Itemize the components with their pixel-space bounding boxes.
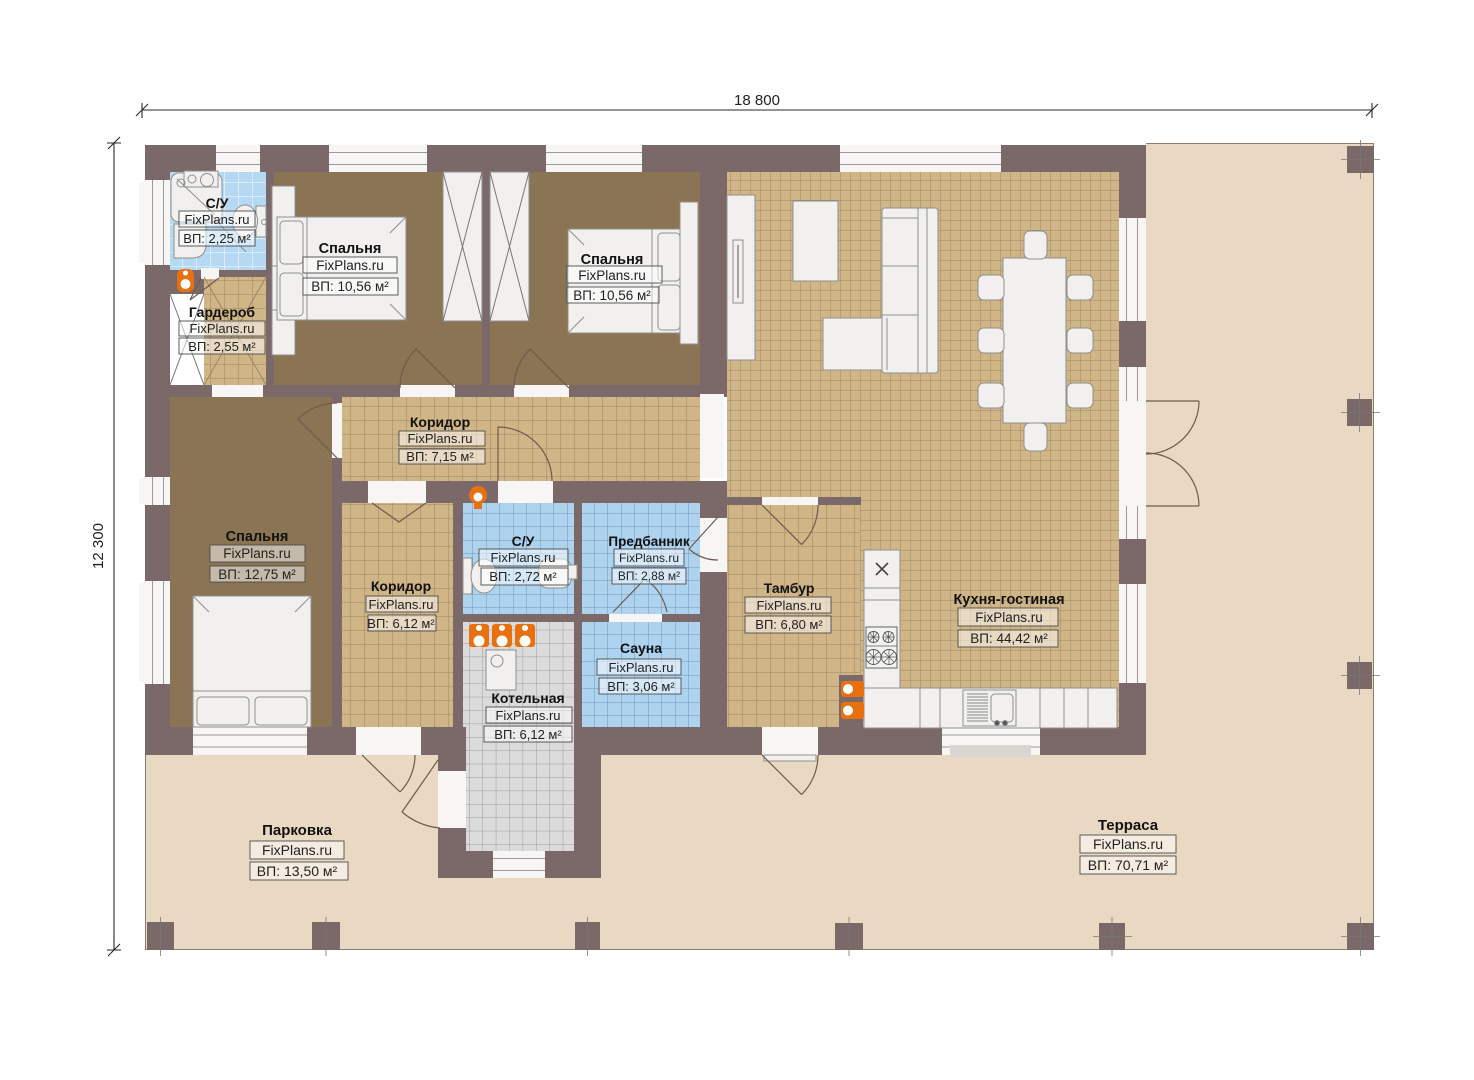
- svg-text:ВП: 2,55 м²: ВП: 2,55 м²: [188, 339, 256, 354]
- svg-text:12 300: 12 300: [90, 523, 107, 569]
- svg-text:С/У: С/У: [206, 195, 229, 211]
- svg-text:Сауна: Сауна: [620, 640, 662, 656]
- svg-text:ВП: 2,88 м²: ВП: 2,88 м²: [618, 569, 680, 583]
- svg-text:FixPlans.ru: FixPlans.ru: [619, 551, 679, 565]
- svg-text:FixPlans.ru: FixPlans.ru: [184, 212, 249, 227]
- svg-text:Тамбур: Тамбур: [764, 580, 815, 596]
- svg-text:ВП: 6,12 м²: ВП: 6,12 м²: [494, 727, 562, 742]
- svg-text:FixPlans.ru: FixPlans.ru: [407, 431, 472, 446]
- svg-text:ВП: 10,56 м²: ВП: 10,56 м²: [311, 279, 389, 294]
- svg-text:18 800: 18 800: [734, 92, 780, 109]
- svg-text:FixPlans.ru: FixPlans.ru: [189, 321, 254, 336]
- svg-text:FixPlans.ru: FixPlans.ru: [262, 842, 332, 858]
- svg-text:FixPlans.ru: FixPlans.ru: [316, 258, 384, 273]
- svg-text:Предбанник: Предбанник: [608, 534, 689, 549]
- svg-text:Котельная: Котельная: [491, 690, 564, 706]
- svg-text:Гардероб: Гардероб: [189, 304, 256, 320]
- svg-text:ВП: 70,71 м²: ВП: 70,71 м²: [1088, 857, 1169, 873]
- svg-text:ВП: 2,72 м²: ВП: 2,72 м²: [489, 569, 557, 584]
- svg-text:FixPlans.ru: FixPlans.ru: [368, 597, 433, 612]
- svg-text:FixPlans.ru: FixPlans.ru: [223, 546, 291, 561]
- svg-text:FixPlans.ru: FixPlans.ru: [578, 268, 646, 283]
- svg-text:ВП: 12,75 м²: ВП: 12,75 м²: [218, 567, 296, 582]
- svg-text:С/У: С/У: [512, 533, 535, 549]
- svg-text:ВП: 6,80 м²: ВП: 6,80 м²: [755, 617, 823, 632]
- svg-text:ВП: 10,56 м²: ВП: 10,56 м²: [573, 288, 651, 303]
- svg-text:FixPlans.ru: FixPlans.ru: [1093, 836, 1163, 852]
- svg-text:Парковка: Парковка: [262, 822, 332, 839]
- svg-text:FixPlans.ru: FixPlans.ru: [490, 550, 555, 565]
- svg-text:Коридор: Коридор: [410, 414, 470, 430]
- svg-text:ВП: 2,25 м²: ВП: 2,25 м²: [183, 231, 251, 246]
- svg-text:Кухня-гостиная: Кухня-гостиная: [953, 592, 1064, 608]
- svg-text:Коридор: Коридор: [371, 578, 431, 594]
- svg-text:Спальня: Спальня: [319, 241, 382, 257]
- svg-text:Терраса: Терраса: [1098, 817, 1159, 834]
- svg-text:ВП: 13,50 м²: ВП: 13,50 м²: [257, 863, 338, 879]
- svg-text:ВП: 44,42 м²: ВП: 44,42 м²: [970, 631, 1048, 646]
- svg-text:Спальня: Спальня: [226, 529, 289, 545]
- svg-text:FixPlans.ru: FixPlans.ru: [608, 660, 673, 675]
- svg-text:ВП: 3,06 м²: ВП: 3,06 м²: [607, 679, 675, 694]
- svg-text:FixPlans.ru: FixPlans.ru: [975, 610, 1043, 625]
- svg-text:ВП: 7,15 м²: ВП: 7,15 м²: [406, 449, 474, 464]
- svg-text:ВП: 6,12 м²: ВП: 6,12 м²: [367, 616, 435, 631]
- svg-text:FixPlans.ru: FixPlans.ru: [495, 708, 560, 723]
- svg-text:FixPlans.ru: FixPlans.ru: [756, 598, 821, 613]
